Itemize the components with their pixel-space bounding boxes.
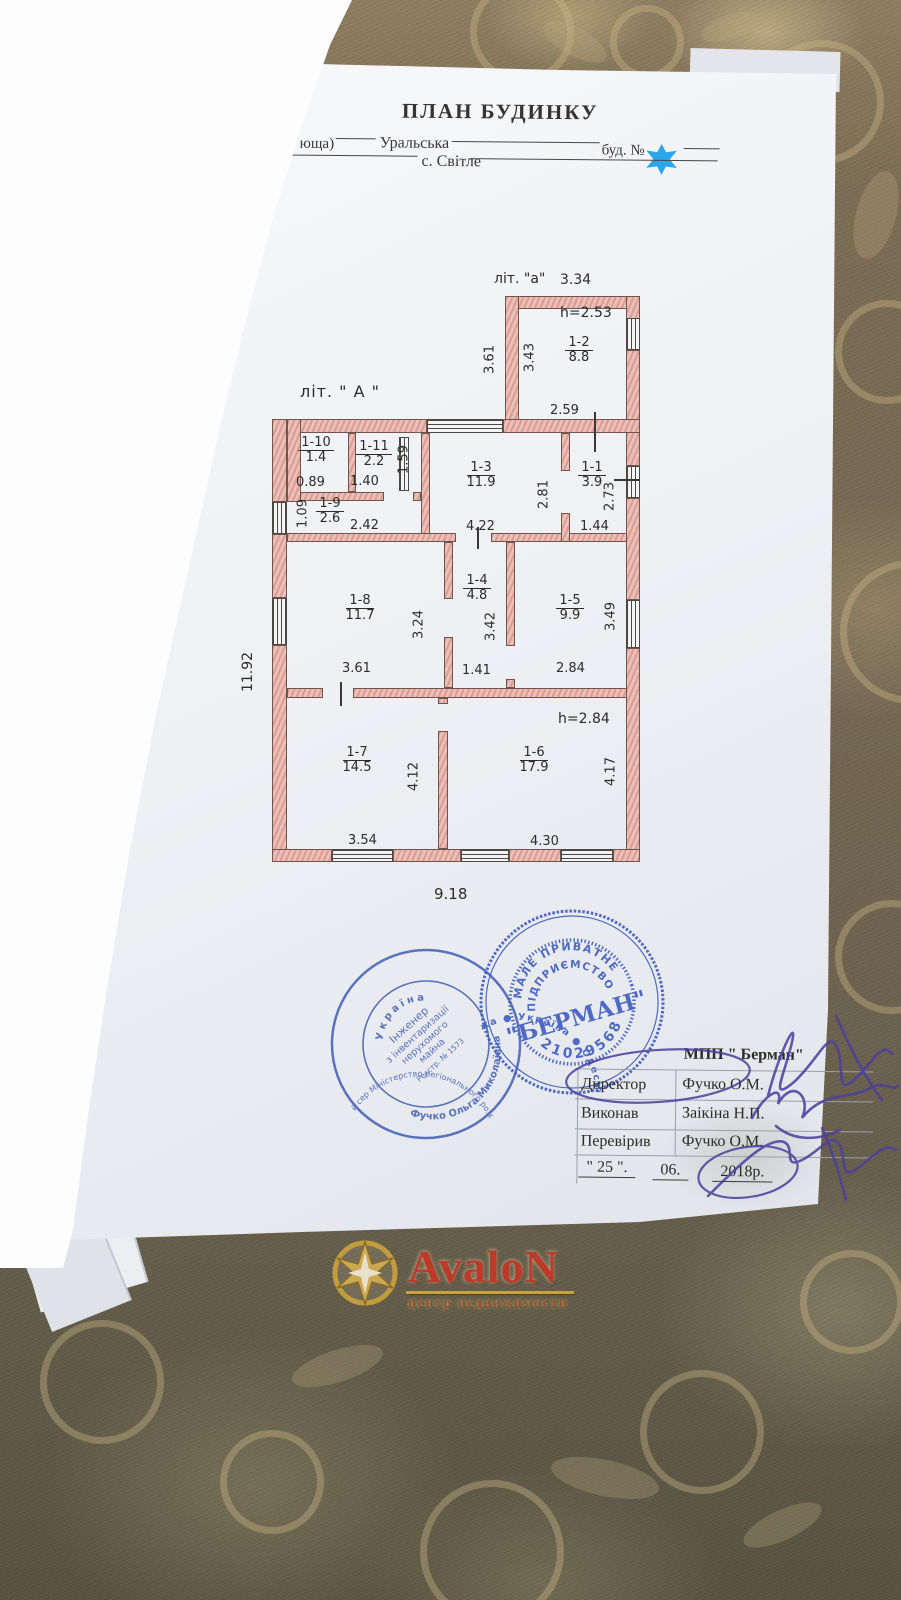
annex-outer-dim: 3.61 <box>483 338 498 382</box>
signatures-ink <box>540 1000 901 1210</box>
dim: 2.73 <box>603 475 618 519</box>
building-label: літ. " А " <box>300 382 380 401</box>
overall-bottom-dim: 9.18 <box>434 885 467 903</box>
room-label: 1-714.5 <box>333 746 381 776</box>
dim: 3.49 <box>604 595 619 639</box>
dim: 2.84 <box>556 661 585 676</box>
annex-inner-dim: 3.43 <box>523 336 538 380</box>
tablecloth-ornament <box>738 1493 828 1556</box>
dim: 0.89 <box>296 475 325 490</box>
room-area: 4.8 <box>453 589 501 603</box>
dim: 4.12 <box>407 755 422 799</box>
watermark-subtitle: центр недвижимости <box>408 1296 568 1312</box>
room-number: 1-2 <box>565 336 592 351</box>
room-label: 1-59.9 <box>546 594 594 624</box>
room-area: 14.5 <box>333 761 381 775</box>
room-label: 1-101.4 <box>292 436 340 466</box>
dim: 4.30 <box>530 834 559 849</box>
tablecloth-ornament <box>220 1430 324 1534</box>
dim: 2.81 <box>537 473 552 517</box>
room-area: 9.9 <box>546 609 594 623</box>
room-area: 11.7 <box>336 609 384 623</box>
room-label: 1-92.6 <box>306 497 354 527</box>
annex-height-note: h=2.53 <box>560 305 612 321</box>
dim: 3.42 <box>484 605 499 649</box>
dim: 1.59 <box>397 438 412 482</box>
room-number: 1-10 <box>298 436 334 451</box>
room-number: 1-4 <box>463 574 490 589</box>
dim: 2.42 <box>350 518 379 533</box>
room-area: 8.8 <box>555 351 603 365</box>
room-label: 1-811.7 <box>336 594 384 624</box>
room-area: 17.9 <box>510 761 558 775</box>
photo-of-floor-plan-document: ПЛАН БУДИНКУ юща) Уральська буд. № ) с. … <box>0 0 901 1600</box>
room-label: 1-311.9 <box>457 461 505 491</box>
dim: 1.09 <box>296 492 311 536</box>
room-label: 1-44.8 <box>453 574 501 604</box>
dim: 3.61 <box>342 661 371 676</box>
dim: 1.41 <box>462 663 491 678</box>
overall-left-dim: 11.92 <box>240 650 256 694</box>
annex-label: літ. "а" <box>494 271 545 287</box>
annex-top-dim: 3.34 <box>560 272 591 288</box>
room-number: 1-6 <box>520 746 547 761</box>
room-area: 1.4 <box>292 451 340 465</box>
compass-rose-icon <box>330 1238 400 1308</box>
room-label: 1-617.9 <box>510 746 558 776</box>
room-number: 1-8 <box>346 594 373 609</box>
room-label: 1-112.2 <box>350 440 398 470</box>
dim: 3.54 <box>348 833 377 848</box>
room-number: 1-3 <box>467 461 494 476</box>
dim: 1.40 <box>350 474 379 489</box>
room-area: 11.9 <box>457 476 505 490</box>
tablecloth-ornament <box>420 1480 564 1600</box>
dim: 4.22 <box>466 519 495 534</box>
room-number: 1-9 <box>316 497 343 512</box>
annex-bottom-dim: 2.59 <box>550 403 579 418</box>
height-note: h=2.84 <box>558 711 610 727</box>
tablecloth-ornament <box>547 1449 662 1507</box>
room-area: 2.2 <box>350 455 398 469</box>
dim: 1.44 <box>580 519 609 534</box>
room-area: 2.6 <box>306 512 354 526</box>
room-number: 1-5 <box>556 594 583 609</box>
watermark-brand: AvaloN <box>408 1240 559 1293</box>
room-number: 1-11 <box>356 440 392 455</box>
dim: 3.24 <box>412 603 427 647</box>
watermark-rule <box>406 1291 574 1294</box>
room-number: 1-7 <box>343 746 370 761</box>
tablecloth-ornament <box>40 1320 164 1444</box>
tablecloth-ornament <box>800 1250 901 1354</box>
tablecloth-ornament <box>287 1336 387 1396</box>
dim: 4.17 <box>604 750 619 794</box>
room-label: 1-28.8 <box>555 336 603 366</box>
tablecloth-ornament <box>640 1370 764 1494</box>
